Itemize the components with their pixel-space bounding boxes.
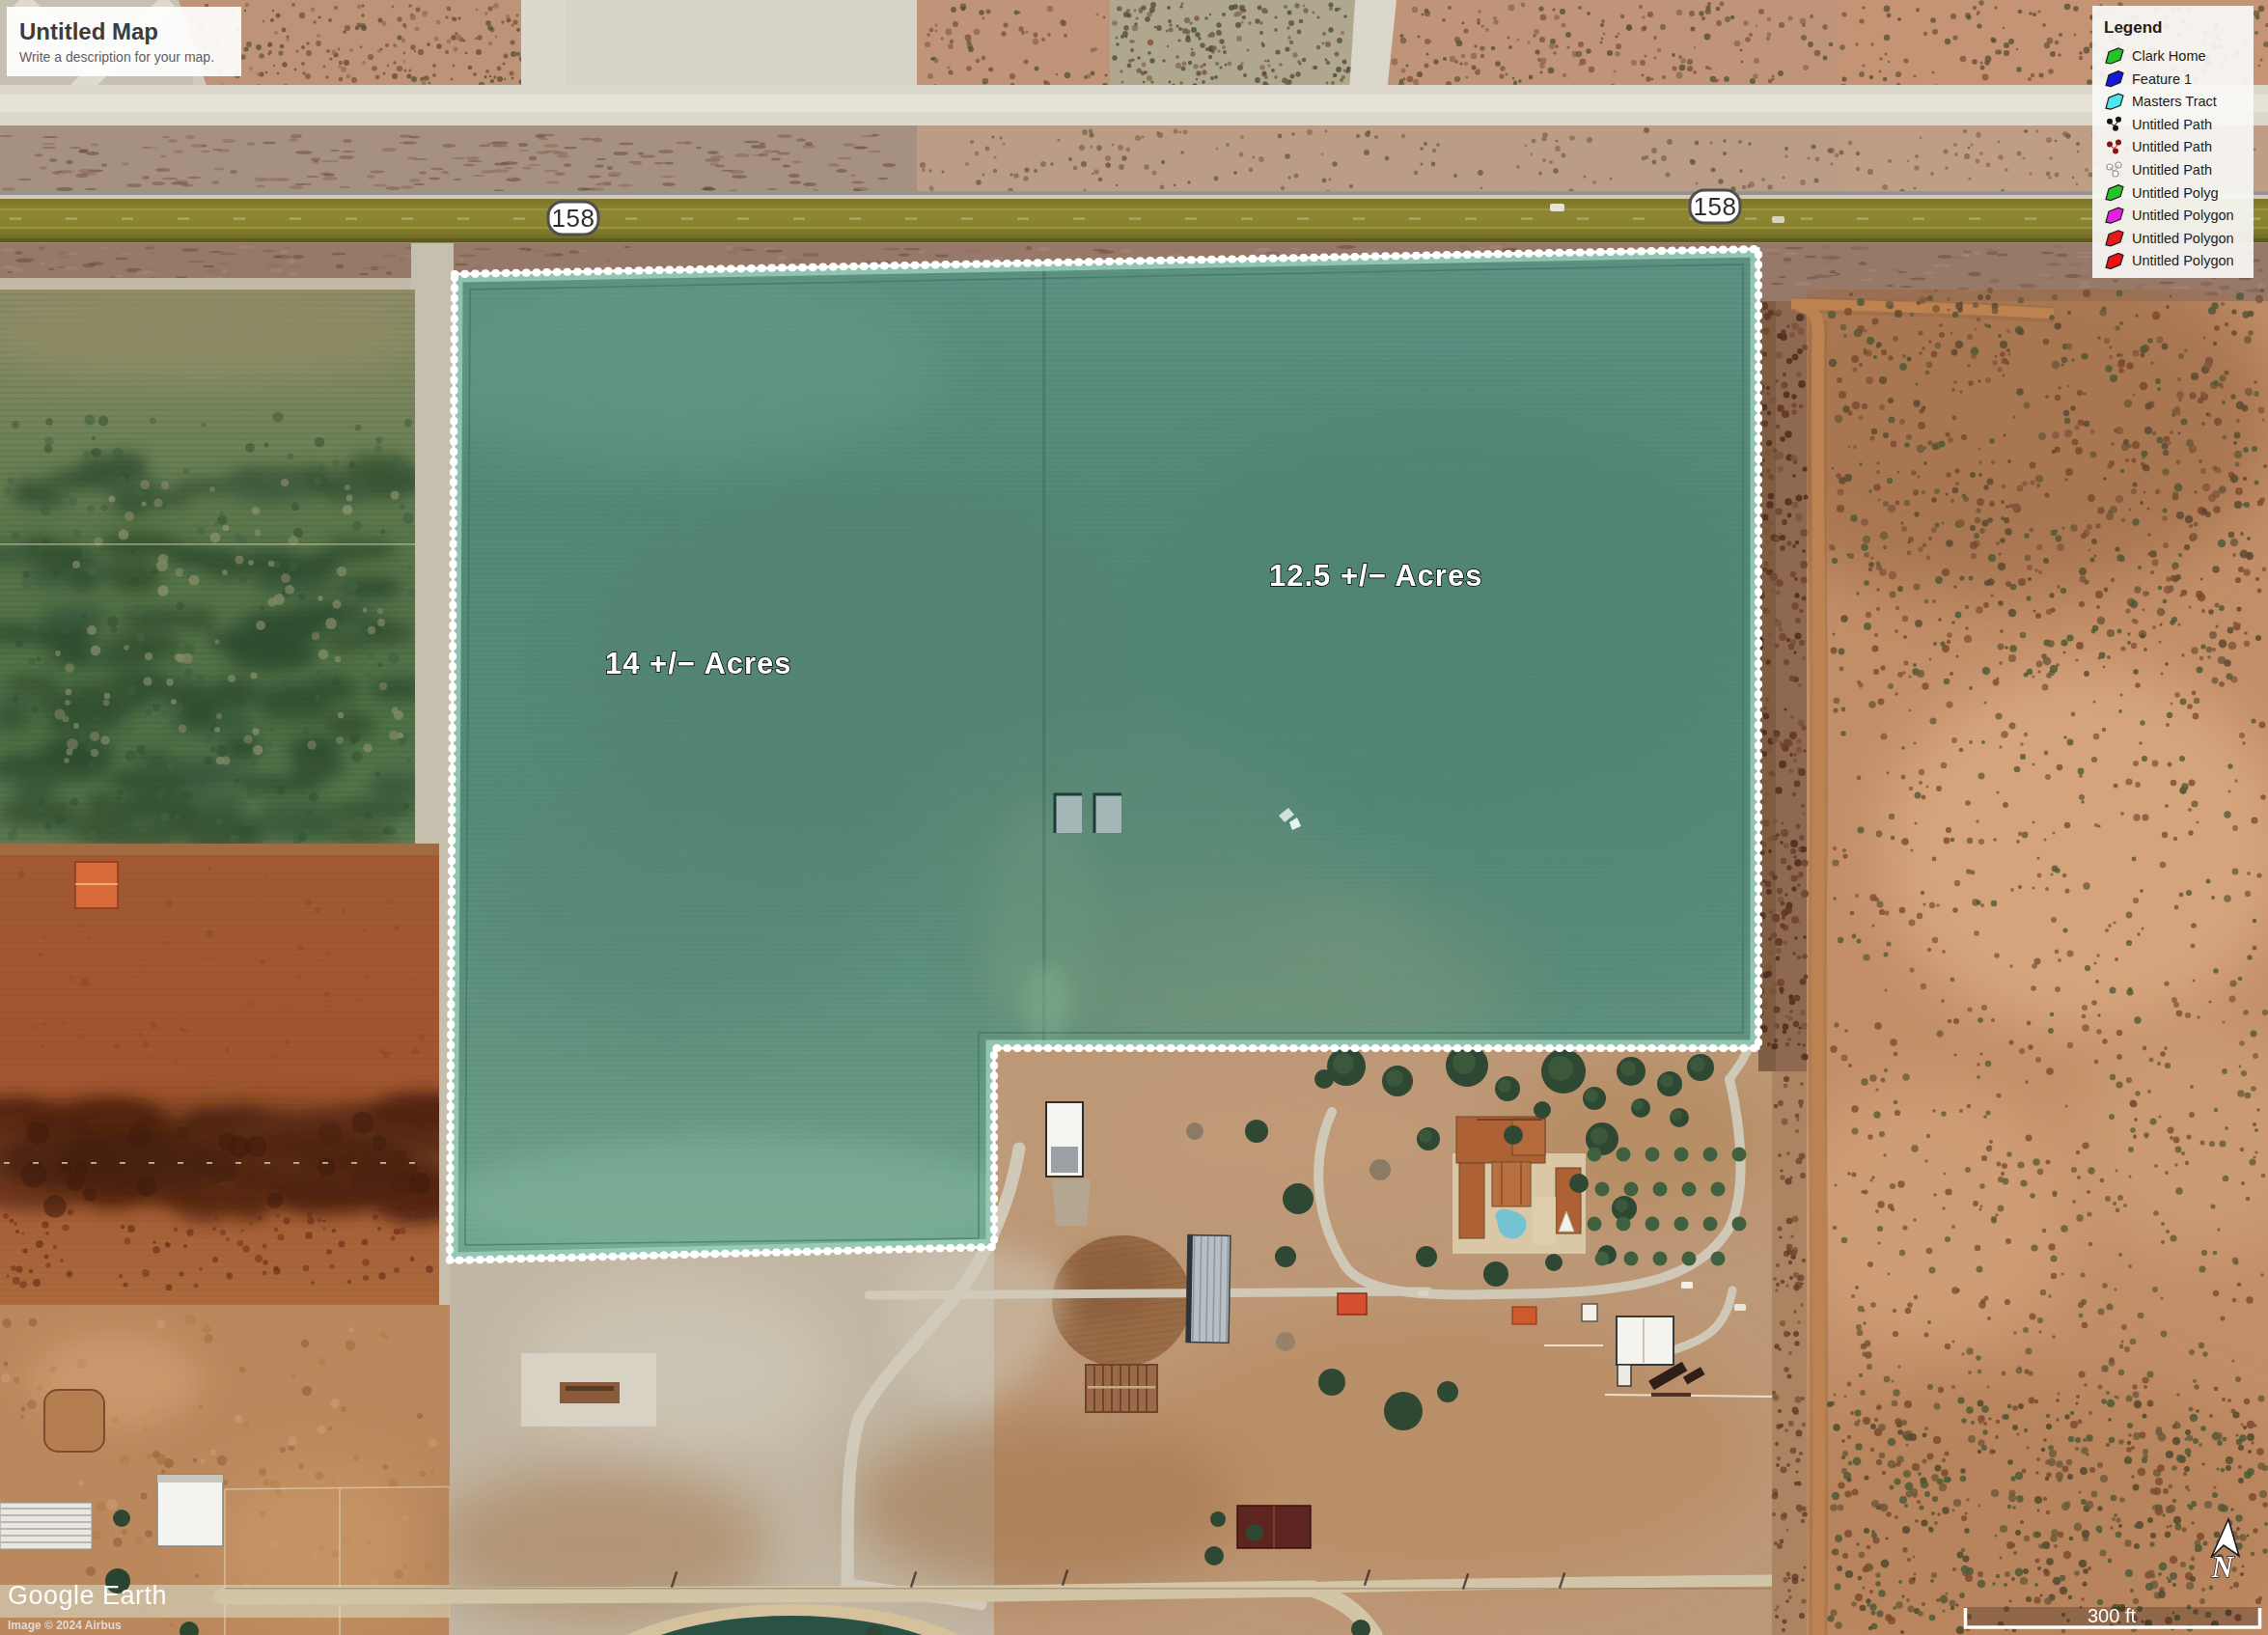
svg-text:Google Earth: Google Earth	[8, 1581, 167, 1610]
svg-text:N: N	[2211, 1550, 2235, 1584]
svg-text:Untitled Map: Untitled Map	[19, 18, 158, 44]
svg-text:Write a description for your m: Write a description for your map.	[19, 49, 214, 65]
svg-text:Untitled Polygon: Untitled Polygon	[2132, 231, 2234, 246]
svg-text:14 +/− Acres: 14 +/− Acres	[605, 647, 792, 680]
svg-text:158: 158	[552, 204, 595, 233]
svg-text:Image © 2024 Airbus: Image © 2024 Airbus	[8, 1619, 122, 1632]
svg-text:Feature 1: Feature 1	[2132, 71, 2192, 87]
svg-text:Untitled Polygon: Untitled Polygon	[2132, 208, 2234, 223]
svg-text:Clark Home: Clark Home	[2132, 48, 2206, 64]
svg-text:Untitled Path: Untitled Path	[2132, 162, 2212, 178]
svg-text:12.5 +/− Acres: 12.5 +/− Acres	[1269, 559, 1482, 593]
svg-text:Untitled Polyg: Untitled Polyg	[2132, 185, 2218, 201]
svg-text:158: 158	[1694, 192, 1737, 221]
svg-text:Legend: Legend	[2104, 18, 2162, 37]
svg-text:Untitled Path: Untitled Path	[2132, 117, 2212, 132]
svg-text:Untitled Polygon: Untitled Polygon	[2132, 253, 2234, 268]
svg-text:Masters Tract: Masters Tract	[2132, 94, 2217, 109]
svg-text:Untitled Path: Untitled Path	[2132, 139, 2212, 154]
svg-text:300 ft: 300 ft	[2088, 1605, 2136, 1626]
